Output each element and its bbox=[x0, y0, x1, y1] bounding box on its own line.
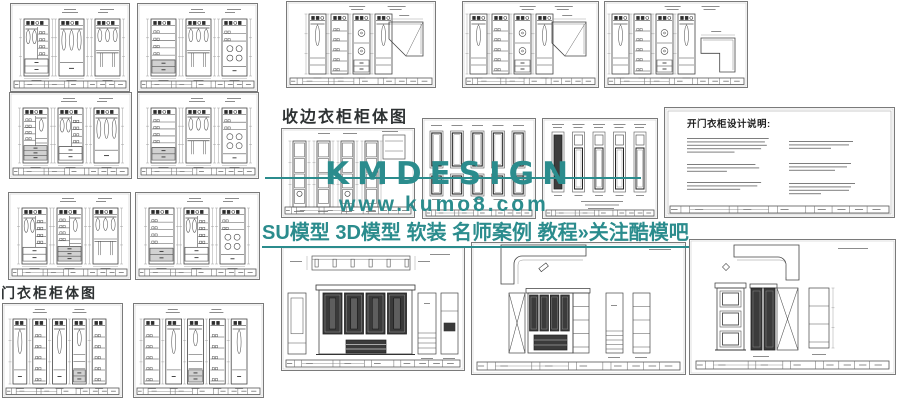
drawing-sheet-wardrobe-elev-b2 bbox=[137, 92, 259, 179]
door-panels-1row-drawing bbox=[543, 119, 657, 218]
wardrobe-elev-c2-drawing bbox=[136, 193, 259, 279]
section-title-door-wardrobe: 门衣柜柜体图 bbox=[1, 283, 97, 303]
wardrobe-elev-b2-drawing bbox=[138, 93, 258, 178]
corner-wardrobe-2-drawing bbox=[463, 2, 598, 87]
drawing-sheet-paneled-wardrobe-corner-2 bbox=[689, 239, 896, 375]
paneled-wardrobe-corner-2-drawing bbox=[690, 240, 895, 374]
cad-collage-canvas: 开门衣柜设计说明: 收边衣柜柜体图 门衣柜柜体图 KMDESIGN www.ku… bbox=[0, 0, 900, 412]
drawing-sheet-door-wardrobe-2 bbox=[133, 303, 264, 398]
wardrobe-elev-b1-drawing bbox=[10, 93, 131, 178]
drawing-sheet-edge-wardrobe bbox=[281, 128, 415, 218]
drawing-sheet-wardrobe-elev-a2 bbox=[137, 3, 258, 92]
corner-wardrobe-1-drawing bbox=[287, 2, 435, 87]
drawing-sheet-corner-wardrobe-2 bbox=[462, 1, 599, 88]
drawing-sheet-wardrobe-elev-a1 bbox=[10, 3, 130, 92]
drawing-sheet-paneled-wardrobe-wide bbox=[281, 246, 465, 371]
edge-wardrobe-drawing bbox=[282, 129, 414, 217]
notes-title: 开门衣柜设计说明: bbox=[687, 118, 771, 130]
drawing-sheet-door-panels-1row bbox=[542, 118, 658, 219]
drawing-sheet-door-wardrobe-1 bbox=[2, 303, 123, 398]
design-notes-drawing: 开门衣柜设计说明: bbox=[665, 108, 894, 217]
wardrobe-elev-a2-drawing bbox=[138, 4, 257, 91]
drawing-sheet-corner-wardrobe-1 bbox=[286, 1, 436, 88]
drawing-sheet-wardrobe-elev-c2 bbox=[135, 192, 260, 280]
wardrobe-elev-a1-drawing bbox=[11, 4, 129, 91]
paneled-wardrobe-corner-1-drawing bbox=[472, 243, 685, 374]
door-wardrobe-2-drawing bbox=[134, 304, 263, 397]
paneled-wardrobe-wide-drawing bbox=[282, 247, 464, 370]
drawing-sheet-door-panels-2row bbox=[422, 118, 536, 219]
section-title-edge-wardrobe: 收边衣柜柜体图 bbox=[282, 103, 408, 127]
drawing-sheet-corner-wardrobe-3 bbox=[604, 1, 748, 88]
door-panels-2row-drawing bbox=[423, 119, 535, 218]
drawing-sheet-wardrobe-elev-b1 bbox=[9, 92, 132, 179]
drawing-sheet-paneled-wardrobe-corner-1 bbox=[471, 242, 686, 375]
drawing-sheet-wardrobe-elev-c1 bbox=[8, 192, 131, 280]
door-wardrobe-1-drawing bbox=[3, 304, 122, 397]
drawing-sheet-design-notes: 开门衣柜设计说明: bbox=[664, 107, 895, 218]
wardrobe-elev-c1-drawing bbox=[9, 193, 130, 279]
corner-wardrobe-3-drawing bbox=[605, 2, 747, 87]
